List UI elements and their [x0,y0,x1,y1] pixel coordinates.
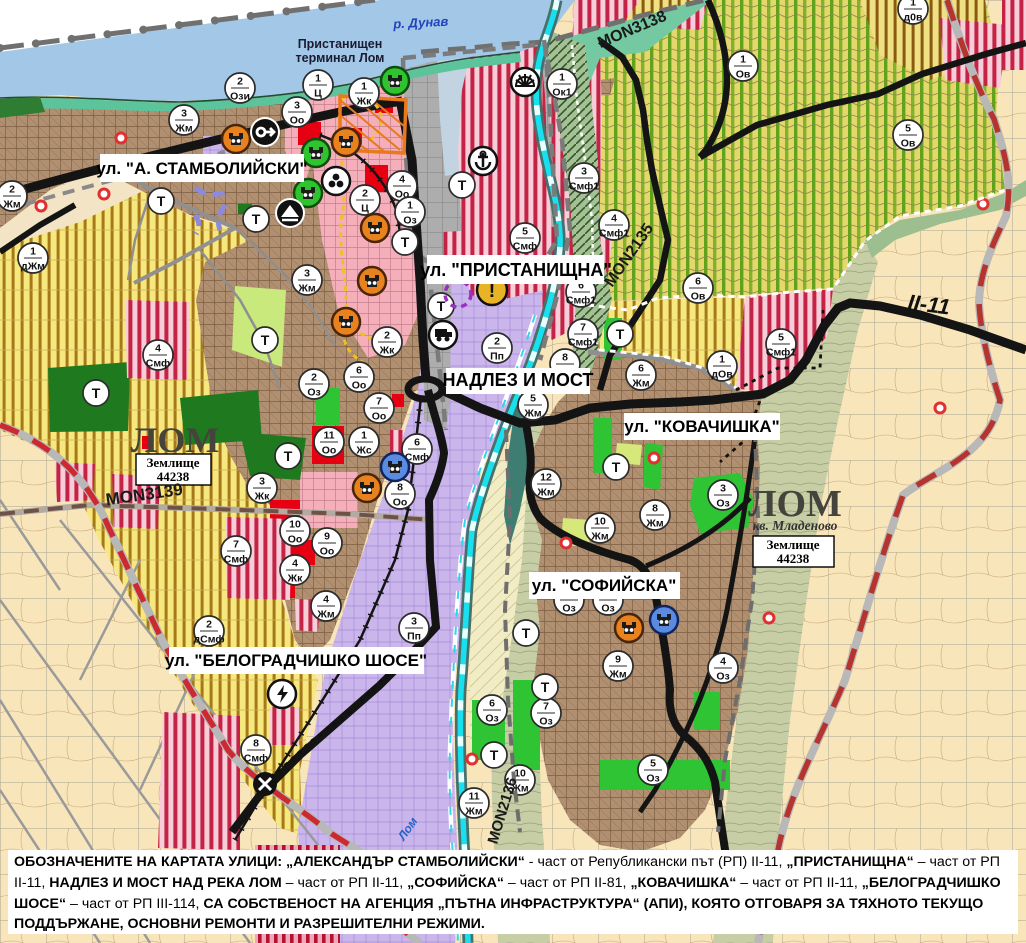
svg-text:Т: Т [616,326,625,342]
svg-text:дОв: дОв [711,369,733,381]
svg-text:Жм: Жм [631,378,649,390]
svg-text:Пп: Пп [490,351,504,363]
svg-text:Смф: Смф [513,241,537,253]
svg-text:8: 8 [397,482,403,494]
svg-text:ОБОЗНАЧЕНИТЕ НА КАРТАТА УЛИЦИ:: ОБОЗНАЧЕНИТЕ НА КАРТАТА УЛИЦИ: „АЛЕКСАНД… [14,852,1000,870]
svg-text:1: 1 [315,73,321,85]
svg-text:терминал Лом: терминал Лом [296,51,385,65]
svg-text:ул. "А. СТАМБОЛИЙСКИ": ул. "А. СТАМБОЛИЙСКИ" [96,159,307,178]
svg-text:ул. "КОВАЧИШКА": ул. "КОВАЧИШКА" [624,417,780,436]
svg-text:Т: Т [437,298,446,314]
svg-text:Смф: Смф [146,358,170,370]
svg-text:Жм: Жм [174,123,192,135]
svg-text:6: 6 [638,363,644,375]
svg-text:Смф1: Смф1 [766,347,796,359]
svg-text:2: 2 [384,330,390,342]
svg-text:кв. Младеново: кв. Младеново [753,518,838,533]
svg-text:Т: Т [157,193,166,209]
svg-text:Землище: Землище [766,537,819,552]
svg-text:Жк: Жк [287,573,303,585]
svg-text:дЖм: дЖм [21,261,45,273]
svg-text:Ов: Ов [901,138,916,150]
svg-text:ул. "БЕЛОГРАДЧИШКО ШОСЕ": ул. "БЕЛОГРАДЧИШКО ШОСЕ" [165,651,427,670]
svg-text:Оо: Оо [352,380,367,392]
svg-text:10: 10 [594,516,606,528]
svg-text:Оо: Оо [320,546,335,558]
svg-text:Т: Т [490,747,499,763]
svg-text:1: 1 [407,200,413,212]
svg-text:Жм: Жм [2,199,20,211]
svg-text:Оо: Оо [322,445,337,457]
svg-text:Оо: Оо [393,497,408,509]
svg-text:Оз: Оз [403,215,416,227]
svg-text:7: 7 [376,396,382,408]
svg-text:6: 6 [489,698,495,710]
svg-text:1: 1 [740,54,746,66]
svg-text:6: 6 [695,276,701,288]
svg-text:Жс: Жс [355,445,371,457]
svg-text:9: 9 [615,654,621,666]
svg-text:Ц: Ц [361,203,369,215]
svg-text:ШОСЕ“ – част от РП III-114, СА: ШОСЕ“ – част от РП III-114, СА СОБСТВЕНО… [14,896,983,912]
svg-text:3: 3 [304,268,310,280]
svg-text:11: 11 [323,430,334,442]
svg-text:Жм: Жм [297,283,315,295]
svg-text:8: 8 [652,503,658,515]
svg-text:6: 6 [356,365,362,377]
svg-text:5: 5 [530,393,536,405]
svg-text:II-11, НАДЛЕЗ И МОСТ НАД РЕКА: II-11, НАДЛЕЗ И МОСТ НАД РЕКА ЛОМ – част… [14,873,1001,891]
svg-text:Жк: Жк [356,96,372,108]
svg-text:Ов: Ов [736,69,751,81]
svg-text:д0в: д0в [904,12,924,24]
svg-text:ПОДДЪРЖАНЕ, ОСНОВНИ РЕМОНТИ И: ПОДДЪРЖАНЕ, ОСНОВНИ РЕМОНТИ И РАЗРЕШИТЕЛ… [14,916,485,932]
svg-text:5: 5 [905,123,911,135]
svg-text:р. Дунав: р. Дунав [392,14,449,32]
svg-text:12: 12 [540,472,552,484]
svg-text:Смф1: Смф1 [568,337,598,349]
svg-text:10: 10 [514,768,526,780]
svg-text:Т: Т [541,679,550,695]
svg-text:4: 4 [399,174,405,186]
svg-text:4: 4 [720,656,726,668]
svg-text:Жм: Жм [590,531,608,543]
svg-text:Т: Т [252,211,261,227]
svg-text:11: 11 [468,791,479,803]
svg-text:5: 5 [650,758,656,770]
svg-text:Оз: Оз [601,603,614,615]
svg-text:Смф1: Смф1 [566,295,596,307]
svg-text:II-11: II-11 [906,290,951,320]
svg-text:3: 3 [411,616,417,628]
svg-text:Пристанищен: Пристанищен [298,37,383,51]
svg-text:10: 10 [289,519,301,531]
svg-text:9: 9 [324,531,330,543]
svg-text:Смф1: Смф1 [569,181,599,193]
svg-text:4: 4 [611,213,617,225]
svg-text:Жм: Жм [316,609,334,621]
svg-text:Жм: Жм [536,487,554,499]
svg-text:Т: Т [458,177,467,193]
svg-text:5: 5 [778,332,784,344]
svg-text:3: 3 [720,483,726,495]
svg-text:Оо: Оо [290,115,305,127]
svg-text:5: 5 [522,226,528,238]
svg-text:1: 1 [361,81,367,93]
svg-text:Жк: Жк [254,491,270,503]
svg-text:Т: Т [401,234,410,250]
svg-text:1: 1 [910,0,916,9]
svg-text:Жм: Жм [523,408,541,420]
svg-text:Оз: Оз [539,716,552,728]
svg-text:Жм: Жм [464,806,482,818]
svg-text:4: 4 [155,343,161,355]
svg-text:Оз: Оз [716,671,729,683]
svg-text:2: 2 [494,336,500,348]
svg-text:4: 4 [323,594,329,606]
svg-text:Оз: Оз [646,773,659,785]
svg-text:Т: Т [522,625,531,641]
svg-text:Ц: Ц [314,88,322,100]
svg-text:ул. "СОФИЙСКА": ул. "СОФИЙСКА" [532,576,677,595]
svg-text:ЛОМ: ЛОМ [131,420,220,460]
svg-text:3: 3 [181,108,187,120]
svg-text:2: 2 [311,372,317,384]
svg-text:Жк: Жк [379,345,395,357]
svg-text:6: 6 [414,437,420,449]
svg-text:2: 2 [206,619,212,631]
svg-text:Смф1: Смф1 [599,228,629,240]
svg-text:Ов: Ов [691,291,706,303]
svg-text:2: 2 [362,188,368,200]
svg-text:3: 3 [259,476,265,488]
svg-text:8: 8 [253,738,259,750]
svg-text:1: 1 [30,246,36,258]
svg-text:7: 7 [580,322,586,334]
svg-text:Т: Т [261,332,270,348]
svg-text:Жм: Жм [645,518,663,530]
svg-text:Оо: Оо [288,534,303,546]
svg-text:Жм: Жм [608,669,626,681]
svg-text:Т: Т [284,448,293,464]
svg-text:7: 7 [543,701,549,713]
svg-text:дСмф: дСмф [193,634,224,646]
svg-text:3: 3 [581,166,587,178]
svg-text:8: 8 [562,352,568,364]
svg-text:Оз: Оз [562,603,575,615]
svg-text:Пп: Пп [407,631,421,643]
svg-text:1: 1 [719,354,725,366]
svg-text:Смф: Смф [244,753,268,765]
svg-text:Оз: Оз [716,498,729,510]
svg-text:2: 2 [9,184,15,196]
svg-text:3: 3 [294,100,300,112]
svg-text:Оо: Оо [372,411,387,423]
svg-text:1: 1 [361,430,367,442]
svg-text:2: 2 [237,76,243,88]
svg-text:1: 1 [559,72,565,84]
svg-text:Оз: Оз [307,387,320,399]
svg-text:Ок1: Ок1 [552,87,571,99]
svg-text:7: 7 [233,539,239,551]
svg-text:НАДЛЕЗ И МОСТ: НАДЛЕЗ И МОСТ [443,370,594,390]
svg-text:Смф: Смф [224,554,248,566]
svg-text:Т: Т [612,459,621,475]
svg-text:4: 4 [292,558,298,570]
svg-text:Т: Т [92,385,101,401]
svg-text:ул. "ПРИСТАНИЩНА": ул. "ПРИСТАНИЩНА" [420,260,612,280]
svg-text:Ози: Ози [230,91,250,103]
svg-text:Оз: Оз [485,713,498,725]
svg-text:44238: 44238 [777,551,810,566]
